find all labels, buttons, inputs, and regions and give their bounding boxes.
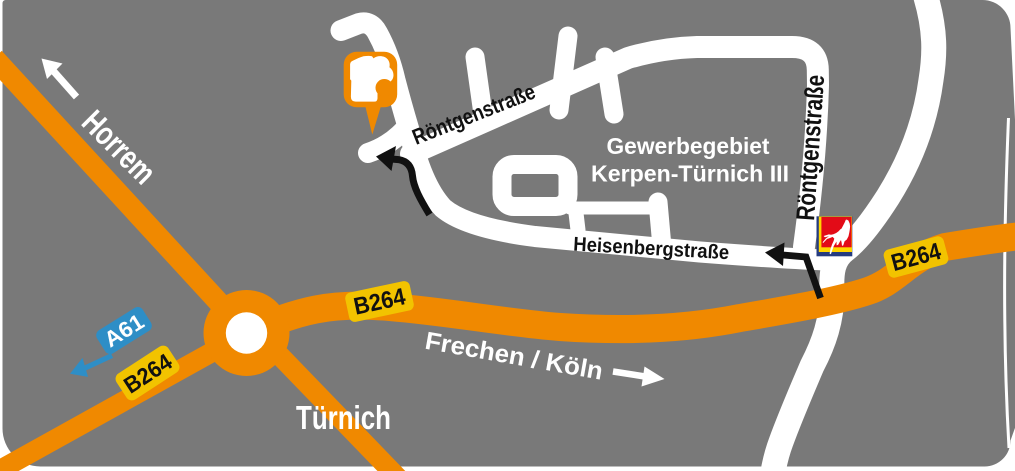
svg-text:Gewerbegebiet: Gewerbegebiet xyxy=(607,133,770,159)
svg-text:Türnich: Türnich xyxy=(296,399,391,436)
svg-text:Kerpen-Türnich III: Kerpen-Türnich III xyxy=(591,161,789,187)
